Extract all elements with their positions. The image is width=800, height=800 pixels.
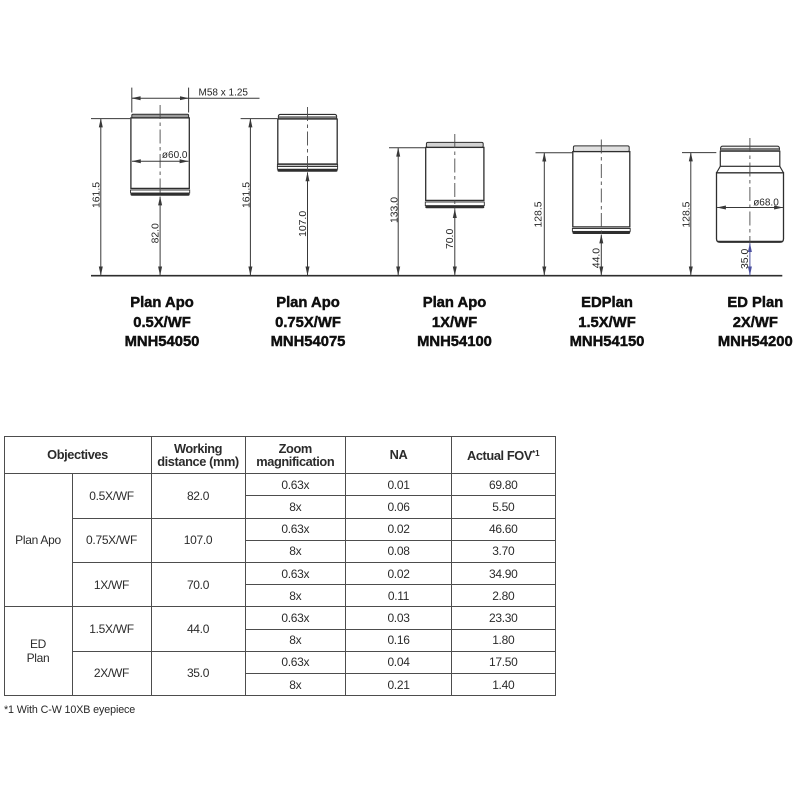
svg-text:2X/WF: 2X/WF — [733, 315, 778, 331]
svg-text:M58 x 1.25: M58 x 1.25 — [199, 88, 249, 99]
svg-text:107.0: 107.0 — [298, 211, 309, 237]
svg-text:MNH54150: MNH54150 — [570, 334, 645, 350]
svg-text:133.0: 133.0 — [389, 197, 400, 223]
svg-text:MNH54200: MNH54200 — [718, 334, 793, 350]
svg-text:MNH54050: MNH54050 — [125, 334, 200, 350]
svg-text:ø60.0: ø60.0 — [162, 150, 188, 161]
svg-text:128.5: 128.5 — [681, 201, 692, 227]
svg-text:161.5: 161.5 — [241, 182, 252, 208]
svg-text:1X/WF: 1X/WF — [432, 315, 477, 331]
svg-text:161.5: 161.5 — [91, 182, 102, 208]
svg-text:70.0: 70.0 — [445, 229, 456, 249]
svg-text:Plan Apo: Plan Apo — [276, 295, 340, 311]
svg-text:0.75X/WF: 0.75X/WF — [275, 315, 341, 331]
svg-text:1.5X/WF: 1.5X/WF — [578, 315, 636, 331]
svg-text:Plan Apo: Plan Apo — [423, 295, 487, 311]
svg-text:MNH54100: MNH54100 — [417, 334, 492, 350]
svg-text:44.0: 44.0 — [592, 248, 603, 268]
svg-text:ED Plan: ED Plan — [727, 295, 783, 311]
svg-text:ø68.0: ø68.0 — [753, 197, 779, 208]
svg-text:EDPlan: EDPlan — [581, 295, 633, 311]
svg-text:0.5X/WF: 0.5X/WF — [133, 315, 191, 331]
svg-text:Plan Apo: Plan Apo — [130, 295, 194, 311]
svg-text:MNH54075: MNH54075 — [271, 334, 346, 350]
svg-text:128.5: 128.5 — [533, 201, 544, 227]
svg-text:82.0: 82.0 — [150, 223, 161, 243]
svg-text:35.0: 35.0 — [740, 249, 751, 269]
